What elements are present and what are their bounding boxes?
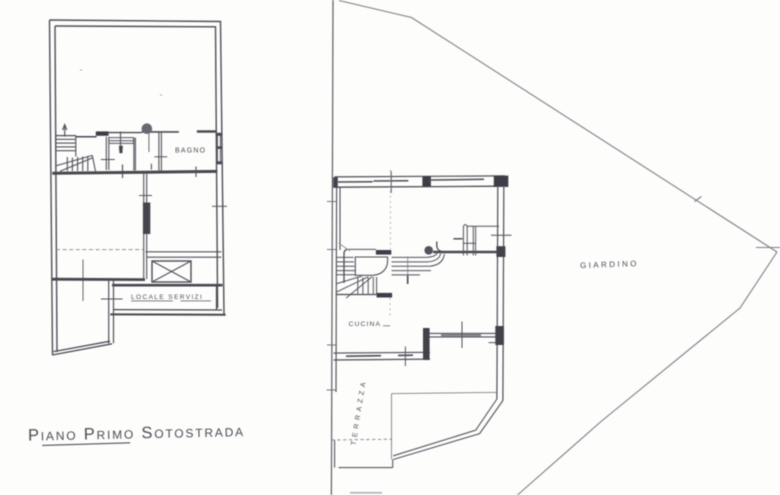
svg-text:LOCALE SERVIZI: LOCALE SERVIZI	[131, 294, 203, 301]
svg-text:Piano Primo Sotostrada: Piano Primo Sotostrada	[28, 422, 245, 445]
svg-text:GIARDINO: GIARDINO	[580, 259, 639, 270]
svg-text:CUCINA: CUCINA	[349, 321, 382, 328]
svg-text:TERRAZZA: TERRAZZA	[351, 378, 368, 446]
svg-text:BAGNO: BAGNO	[175, 148, 206, 155]
